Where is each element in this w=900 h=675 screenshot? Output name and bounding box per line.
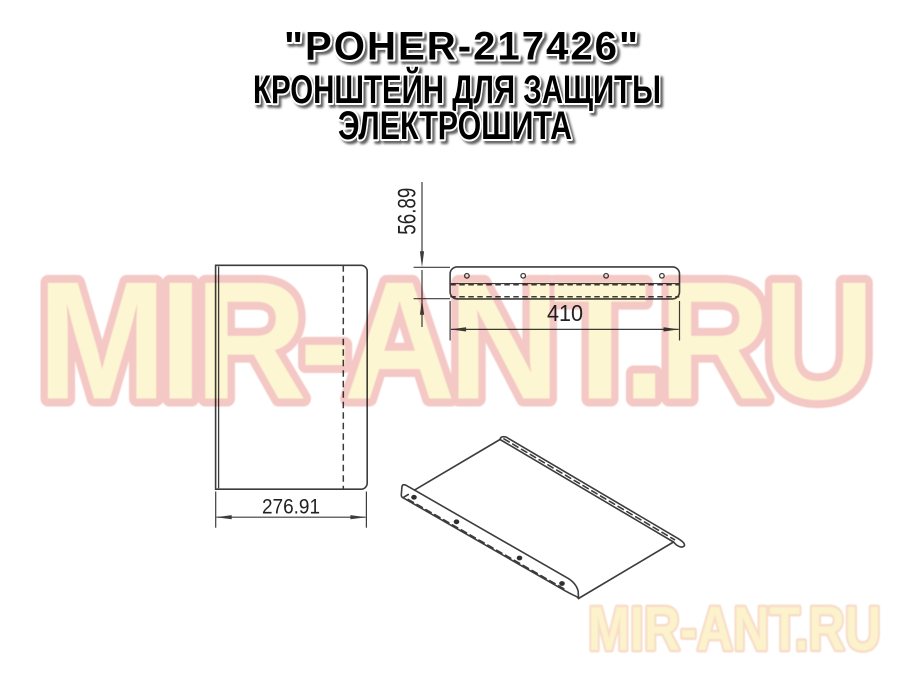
svg-text:ЭЛЕКТРОШИТА: ЭЛЕКТРОШИТА <box>338 104 572 148</box>
svg-text:MIR-ANT.RU: MIR-ANT.RU <box>588 595 881 664</box>
svg-text:MIR-ANT.RU: MIR-ANT.RU <box>38 247 868 435</box>
svg-text:"POHER-217426": "POHER-217426" <box>284 25 640 69</box>
